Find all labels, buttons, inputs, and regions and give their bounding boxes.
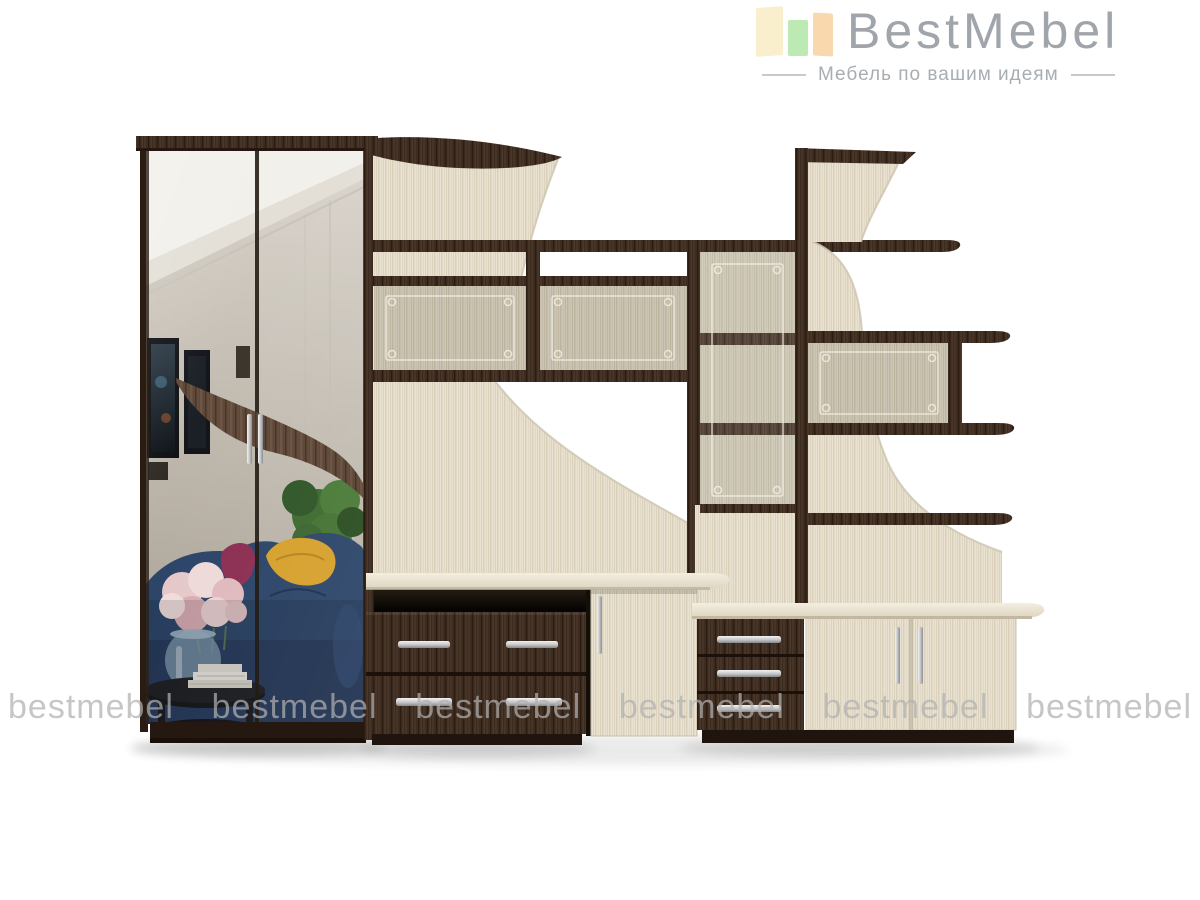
wardrobe-cornice: [136, 136, 378, 150]
drawer-handle: [396, 698, 452, 706]
tagline-dash: [762, 74, 806, 76]
drawer-handle: [717, 705, 781, 712]
brand-tagline-row: Мебель по вашим идеям: [762, 64, 1136, 86]
sideboard-drawers: [697, 618, 804, 730]
furniture-render: [0, 0, 1200, 900]
right-shelving: [695, 148, 1014, 608]
product-page: BestMebel Мебель по вашим идеям bestmebe…: [0, 0, 1200, 900]
door-handle: [597, 596, 602, 654]
sideboard: [692, 603, 1044, 743]
long-shelf: [364, 240, 960, 252]
sideboard-top: [692, 603, 1044, 618]
column: [795, 148, 808, 608]
drawer-handle: [717, 636, 781, 643]
top-box-panel: [808, 162, 898, 242]
tv-cabinet-door: [591, 588, 697, 736]
brand-tagline: Мебель по вашим идеям: [818, 64, 1059, 86]
door-handle: [918, 627, 923, 684]
brand-name: BestMebel: [847, 6, 1119, 56]
drawer-handle: [506, 698, 562, 706]
tv-shelf: [366, 573, 729, 589]
logo-bars-icon: [756, 6, 833, 56]
tagline-dash: [1071, 74, 1115, 76]
drawer-handle: [506, 641, 558, 648]
sideboard-plinth: [702, 730, 1014, 743]
door-handle: [895, 627, 900, 684]
glass-display-column: [700, 252, 795, 513]
glass-cabinet-right: [540, 286, 687, 372]
glass-cabinet-side: [808, 341, 962, 435]
sideboard-doors: [806, 618, 1016, 730]
wardrobe: [136, 136, 378, 743]
top-box-lid: [795, 148, 916, 164]
tv-backdrop-panel: [373, 368, 688, 577]
drawer-handle: [398, 641, 450, 648]
shelf: [795, 513, 1012, 525]
divider: [526, 240, 540, 382]
tv-niche: [374, 589, 586, 614]
glass-cabinet-left: [374, 286, 526, 372]
shelf: [795, 331, 1010, 343]
drawer-handle: [717, 670, 781, 677]
shelf: [795, 423, 1014, 435]
brand-logo: BestMebel Мебель по вашим идеям: [756, 6, 1136, 86]
drawer-chest: [366, 612, 588, 745]
